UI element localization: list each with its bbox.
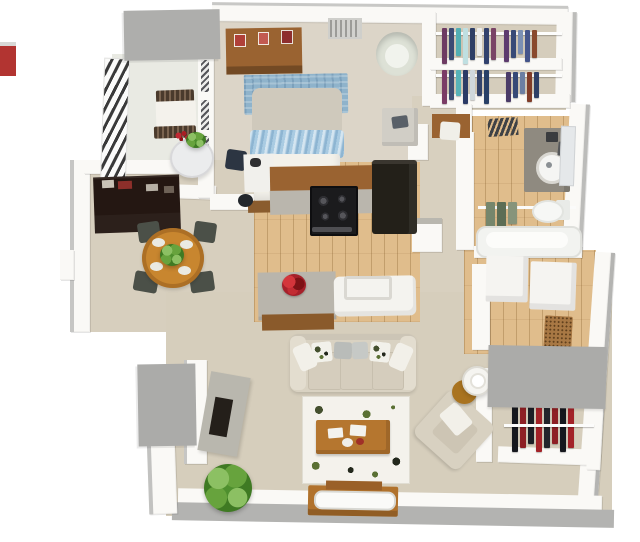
clothes-rack-2a-garment (449, 70, 454, 100)
balcony-roof (124, 9, 221, 61)
clothes-rack-1a (442, 28, 496, 64)
entry-clothes-rack-garment (536, 406, 542, 452)
clothes-rack-2a-garment (442, 70, 447, 104)
neighbor-red-box (0, 42, 16, 76)
apartment-3d-floorplan (0, 0, 640, 542)
clothes-rack-2b-garment (534, 72, 539, 98)
clothes-rack-2b-garment (513, 72, 518, 98)
patio-plant (186, 132, 206, 148)
photo-frame-3 (281, 30, 293, 44)
pillow-gray-2 (352, 342, 369, 360)
coffee-table-tray-1 (328, 427, 344, 438)
table-centerpiece (160, 244, 184, 266)
clothes-rack-2b (506, 72, 539, 102)
place-setting-4 (178, 266, 191, 275)
sink-drain (546, 162, 552, 168)
window-louvre-2 (201, 100, 209, 130)
floor-lamp-inner (470, 373, 486, 389)
oven-handle (312, 227, 352, 232)
clothes-rack-1a-garment (449, 28, 454, 60)
bedside-lamp-left (238, 194, 253, 207)
below-chimney-wall (147, 438, 178, 515)
clothes-rack-2b-garment (506, 72, 511, 102)
window-louvre-1 (201, 60, 209, 92)
fruit-bowl (282, 274, 306, 296)
balcony-railing (100, 58, 131, 189)
entry-clothes-rack-garment (560, 406, 566, 452)
nightstand-deco (391, 115, 409, 129)
pillow-gray-1 (334, 342, 353, 360)
sideboard-item-3 (146, 184, 158, 191)
entry-closet-rod (504, 424, 594, 427)
top-wall (212, 2, 568, 25)
peninsula-base (262, 313, 334, 330)
sideboard-item-1 (102, 180, 114, 189)
clothes-rack-1b-garment (504, 30, 509, 62)
place-setting-1 (152, 238, 165, 247)
photo-frame-2 (258, 32, 269, 45)
mirror (559, 126, 576, 186)
tub-chair-cushion (385, 44, 409, 68)
ceiling-vent (328, 18, 362, 39)
dryer (529, 261, 577, 311)
dining-left-wall (70, 160, 90, 332)
window-bump (60, 250, 74, 280)
coffee-table-deco-red (356, 438, 364, 445)
toilet-bowl (532, 200, 564, 223)
entry-closet-roof (487, 345, 606, 409)
entry-clothes-rack-garment (512, 406, 518, 452)
bath-vent (487, 117, 518, 137)
coffee-table-tray-2 (350, 424, 367, 436)
entry-clothes-rack-garment (568, 406, 574, 448)
closet-right-wall (555, 12, 577, 102)
vanity-item-1 (546, 132, 558, 142)
lounge-chair-cushion (156, 100, 197, 127)
tv-console-back (326, 481, 382, 491)
towels-green-garment (497, 202, 506, 228)
clothes-rack-2a (442, 70, 489, 104)
coffee-table-plate (342, 438, 353, 447)
refrigerator (372, 160, 417, 234)
clothes-rack-2b-garment (527, 72, 532, 102)
entry-clothes-rack-garment (544, 406, 550, 448)
bathtub-inner (486, 232, 568, 248)
clothes-rack-1a-garment (442, 28, 447, 64)
towels-green-garment (508, 202, 517, 224)
bath-left-wall (456, 132, 474, 250)
clothes-rack-2a-garment (484, 70, 489, 104)
nook-chair (439, 121, 460, 140)
floor-plan (0, 0, 640, 542)
clothes-rack-2a-garment (456, 70, 461, 96)
tv (314, 490, 396, 510)
clothes-rack-1a-garment (470, 28, 475, 60)
clothes-rack-1a-garment (491, 28, 496, 60)
kitchen-faucet (250, 158, 261, 167)
clothes-rack-2a-garment (463, 70, 468, 104)
photo-frame-1 (234, 34, 246, 47)
sideboard-item-4 (164, 186, 174, 193)
clothes-rack-1b (504, 30, 537, 62)
island-handle (344, 276, 392, 300)
clothes-rack-1b-garment (532, 30, 537, 58)
place-setting-2 (180, 240, 193, 249)
entry-clothes-rack-garment (520, 406, 526, 448)
sideboard-item-2 (118, 181, 132, 189)
clothes-rack-2a-garment (477, 70, 482, 96)
clothes-rack-1b-garment (511, 30, 516, 58)
place-setting-3 (150, 262, 163, 271)
chimney-roof (137, 364, 196, 447)
washer (486, 256, 529, 303)
pillow-floral-left (311, 341, 333, 363)
clothes-rack-1a-garment (456, 28, 461, 56)
clothes-rack-1a-garment (484, 28, 489, 64)
pillow-floral-right (369, 341, 391, 363)
clothes-rack-2a-garment (470, 70, 475, 100)
potted-plant (204, 464, 252, 512)
entry-clothes-rack (512, 406, 574, 452)
clothes-rack-1b-garment (518, 30, 523, 54)
clothes-rack-1a-garment (477, 28, 482, 56)
clothes-rack-1a-garment (463, 28, 468, 64)
clothes-rack-2b-garment (520, 72, 525, 94)
clothes-rack-1b-garment (525, 30, 530, 62)
